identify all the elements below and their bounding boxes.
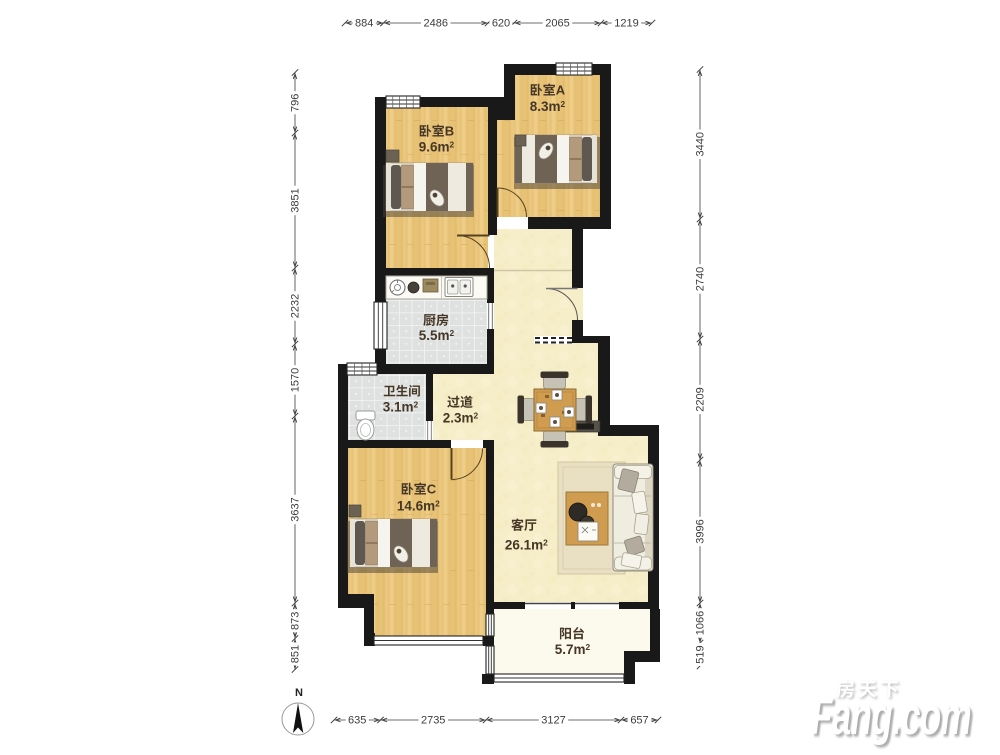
svg-text:C: C: [427, 482, 437, 497]
svg-text:2209: 2209: [695, 387, 707, 411]
svg-text:3851: 3851: [290, 188, 302, 212]
svg-text:884: 884: [355, 18, 373, 30]
svg-text:796: 796: [290, 94, 302, 112]
svg-text:1570: 1570: [290, 368, 302, 392]
svg-text:B: B: [445, 124, 454, 139]
svg-text:9.6m2: 9.6m2: [419, 139, 455, 154]
svg-text:3440: 3440: [695, 132, 707, 156]
svg-text:26.1m2: 26.1m2: [505, 537, 548, 552]
svg-text:3.1m2: 3.1m2: [383, 399, 419, 414]
svg-text:620: 620: [492, 18, 510, 30]
svg-text:5.7m2: 5.7m2: [555, 642, 591, 657]
svg-text:3127: 3127: [541, 715, 565, 727]
svg-text:3637: 3637: [290, 497, 302, 521]
svg-text:A: A: [556, 83, 566, 98]
svg-text:3996: 3996: [695, 519, 707, 543]
svg-text:851: 851: [290, 645, 302, 663]
svg-text:1219: 1219: [614, 18, 638, 30]
svg-text:14.6m2: 14.6m2: [397, 498, 440, 513]
svg-text:N: N: [295, 687, 303, 699]
svg-text:2486: 2486: [424, 18, 448, 30]
svg-text:1066: 1066: [695, 611, 707, 635]
svg-text:8.3m2: 8.3m2: [530, 99, 566, 114]
svg-text:635: 635: [348, 715, 366, 727]
svg-text:2735: 2735: [421, 715, 445, 727]
svg-text:2.3m2: 2.3m2: [443, 410, 479, 425]
svg-text:2232: 2232: [290, 294, 302, 318]
svg-text:5.5m2: 5.5m2: [419, 328, 455, 343]
svg-text:Fang.com: Fang.com: [811, 686, 971, 746]
svg-text:657: 657: [630, 715, 648, 727]
svg-text:2740: 2740: [695, 267, 707, 291]
svg-text:2065: 2065: [545, 18, 569, 30]
svg-text:519: 519: [695, 645, 707, 663]
svg-text:873: 873: [290, 612, 302, 630]
